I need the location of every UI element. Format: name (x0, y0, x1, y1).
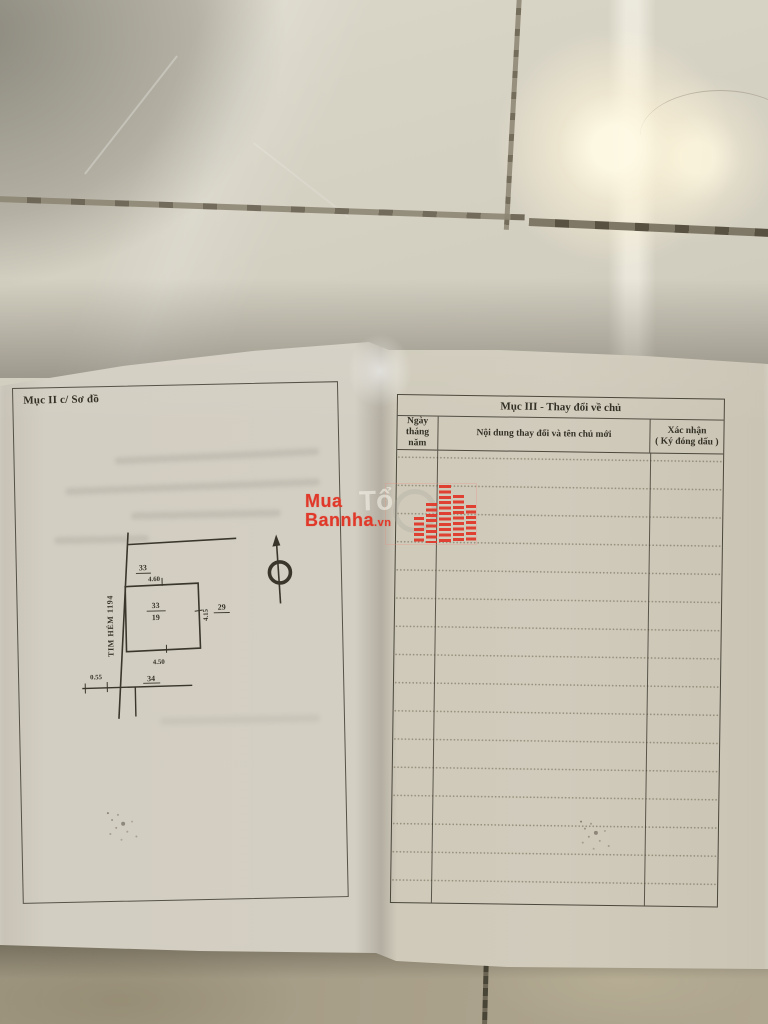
tile-grout-horizontal-left (0, 196, 525, 220)
parcel-number-numerator: 33 (151, 601, 159, 610)
south-boundary-drop (135, 686, 136, 716)
parcel-top-label: 33 (139, 563, 147, 572)
col-header-confirm-line1: Xác nhận (668, 425, 707, 436)
parcel-bottom-label: 34 (147, 674, 155, 683)
photo-scene: Mục II c/ Sơ đồ 33 4.60 33 (0, 0, 768, 1024)
parcel-rectangle (125, 583, 200, 652)
dim-top-label: 4.60 (148, 576, 161, 583)
dim-offset-label: 0.55 (90, 674, 103, 681)
col-header-confirm: Xác nhận ( Ký đóng dấu ) (650, 420, 723, 454)
muabannha-watermark: Tổ Mua Bannha.vn (301, 483, 479, 547)
col-header-date-line2: năm (408, 438, 426, 449)
north-boundary-line (127, 538, 236, 544)
building-icon (466, 505, 476, 543)
section-ii-title: Mục II c/ Sơ đồ (23, 393, 99, 407)
watermark-text: Mua Bannha.vn (305, 492, 391, 529)
watermark-brand: Bannha (305, 510, 374, 530)
paper-stain (580, 821, 582, 823)
building-icon (439, 485, 451, 543)
dim-bottom-label: 4.50 (153, 659, 166, 666)
table-header-row: Ngày tháng năm Nội dung thay đổi và tên … (397, 416, 723, 455)
watermark-suffix: .vn (374, 517, 391, 529)
alley-name-label: TIM HẺM 1194 (104, 595, 115, 657)
ink-bleedthrough (65, 478, 320, 495)
tile-hairline-scratch (640, 90, 768, 181)
site-plan-diagram: 33 4.60 33 19 29 4.15 4.50 0.55 34 TIM H… (56, 513, 300, 728)
parcel-right-label: 29 (218, 603, 226, 612)
paper-stain (107, 812, 109, 814)
parcel-number-denominator: 19 (152, 613, 160, 622)
building-icon (453, 495, 464, 543)
ink-bleedthrough (114, 448, 319, 465)
building-icon (426, 503, 437, 543)
north-arrow-icon (269, 534, 291, 603)
tile-scratch (84, 55, 178, 174)
col-header-content-label: Nội dung thay đổi và tên chủ mới (476, 428, 611, 441)
building-icon (414, 517, 424, 543)
left-page-frame: Mục II c/ Sơ đồ 33 4.60 33 (12, 381, 349, 904)
tile-grout-vertical (504, 0, 522, 230)
dim-tick (195, 610, 203, 611)
alley-centerline (115, 533, 132, 719)
south-boundary-line (82, 685, 192, 688)
dim-right-label: 4.15 (203, 608, 210, 621)
col-header-date: Ngày tháng năm (397, 416, 438, 450)
col-header-confirm-line2: ( Ký đóng dấu ) (655, 436, 719, 448)
watermark-line1: Mua (305, 492, 391, 510)
watermark-line2: Bannha.vn (305, 511, 391, 529)
col-header-date-line1: Ngày tháng (397, 416, 437, 438)
tile-grout-horizontal-right (529, 218, 768, 237)
column-divider (643, 454, 650, 906)
right-page-table: Mục III - Thay đổi về chủ Ngày tháng năm… (390, 394, 725, 908)
col-header-content: Nội dung thay đổi và tên chủ mới (438, 417, 650, 453)
